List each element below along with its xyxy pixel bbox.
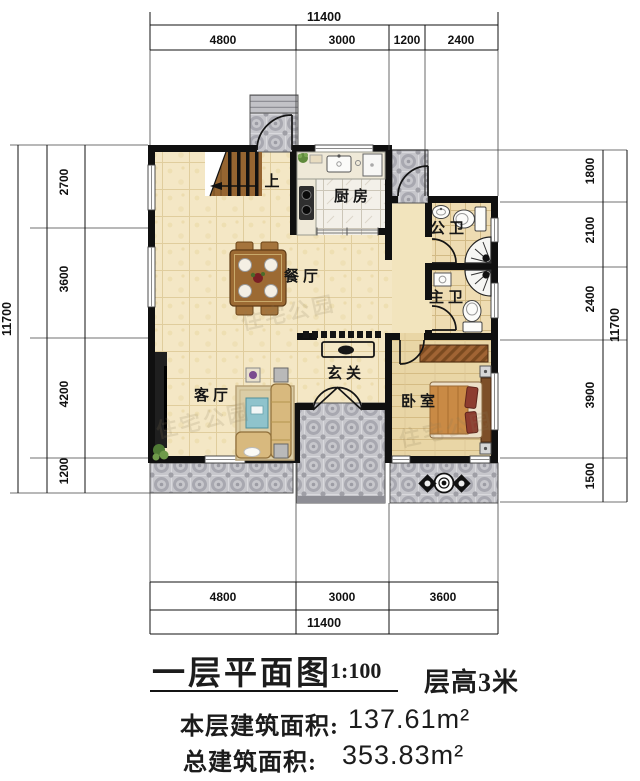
bedroom-bottom-window-2 (470, 456, 490, 463)
dim-left-seg2: 3600 (57, 265, 71, 292)
dim-bottom-overall: 11400 (307, 616, 341, 630)
dim-top-seg3: 1200 (394, 33, 421, 47)
dim-right-seg3: 2400 (583, 285, 597, 312)
stair-window (148, 165, 155, 210)
living-label: 客厅 (193, 386, 232, 404)
public-bath-label: 公卫 (430, 220, 468, 237)
dim-top-overall: 11400 (307, 10, 341, 24)
bath2-vanity (434, 273, 451, 286)
dim-left-seg3: 4200 (57, 380, 71, 407)
plan-scale: 1:100 (330, 658, 381, 684)
dim-right-seg4: 3900 (583, 381, 597, 408)
bedroom-label: 卧室 (401, 392, 439, 410)
dim-bottom-seg1: 4800 (210, 590, 237, 604)
title-underline (150, 690, 398, 692)
dim-top-seg4: 2400 (448, 33, 475, 47)
left-terrace (150, 463, 293, 493)
bath1-toilet-tank (475, 207, 486, 231)
entry-screen (303, 331, 381, 338)
floor-height-note: 层高3米 (424, 662, 519, 699)
dim-bottom-seg2: 3000 (329, 590, 356, 604)
passage-floor (385, 260, 392, 337)
floor-area-value: 137.61m² (348, 704, 470, 735)
stairs-up-label: 上 (264, 173, 279, 190)
dim-right-overall: 11700 (608, 308, 622, 342)
total-area-value: 353.83m² (342, 740, 464, 771)
kitchen-sink (327, 156, 351, 172)
floor-plan-page: 厨房 餐厅 客厅 玄关 卧室 公卫 主卫 上 住宅公园 住宅公园 住宅公园 11… (0, 0, 640, 781)
dim-left-seg1: 2700 (57, 168, 71, 195)
end-table-1 (274, 368, 288, 382)
dim-right-seg1: 1800 (583, 157, 597, 184)
terrace-set (418, 474, 470, 493)
bath2-toilet-tank (463, 322, 482, 332)
sofa-throw (244, 448, 260, 457)
floor-area-label: 本层建筑面积: (180, 706, 339, 741)
dim-top-seg1: 4800 (210, 33, 237, 47)
dim-left-overall: 11700 (0, 302, 14, 336)
total-area-label: 总建筑面积: (183, 742, 317, 777)
side-porch-steps (250, 95, 298, 113)
dim-bottom-seg3: 3600 (430, 590, 457, 604)
dim-top-seg2: 3000 (329, 33, 356, 47)
bedroom-bottom-window-1 (392, 456, 410, 463)
plan-title: 一层平面图 (152, 646, 332, 694)
kitchen-window (315, 145, 373, 152)
dim-left-seg4: 1200 (57, 457, 71, 484)
entry-porch-step (297, 496, 385, 503)
wardrobe (420, 345, 488, 362)
master-bath-window (491, 283, 498, 318)
kitchen-label: 厨房 (334, 187, 372, 205)
dining-window (148, 247, 155, 307)
dim-right-seg5: 1500 (583, 462, 597, 489)
end-table-2 (274, 444, 288, 458)
master-bath-label: 主卫 (429, 288, 467, 306)
public-bath-window (491, 218, 498, 242)
pillow-1 (465, 386, 478, 408)
dining-label: 餐厅 (284, 267, 322, 285)
dim-right-seg2: 2100 (583, 216, 597, 243)
entry-porch (297, 403, 385, 503)
entry-label: 玄关 (327, 364, 365, 382)
kitchen-board (310, 155, 322, 163)
bath1-sink (433, 206, 450, 219)
